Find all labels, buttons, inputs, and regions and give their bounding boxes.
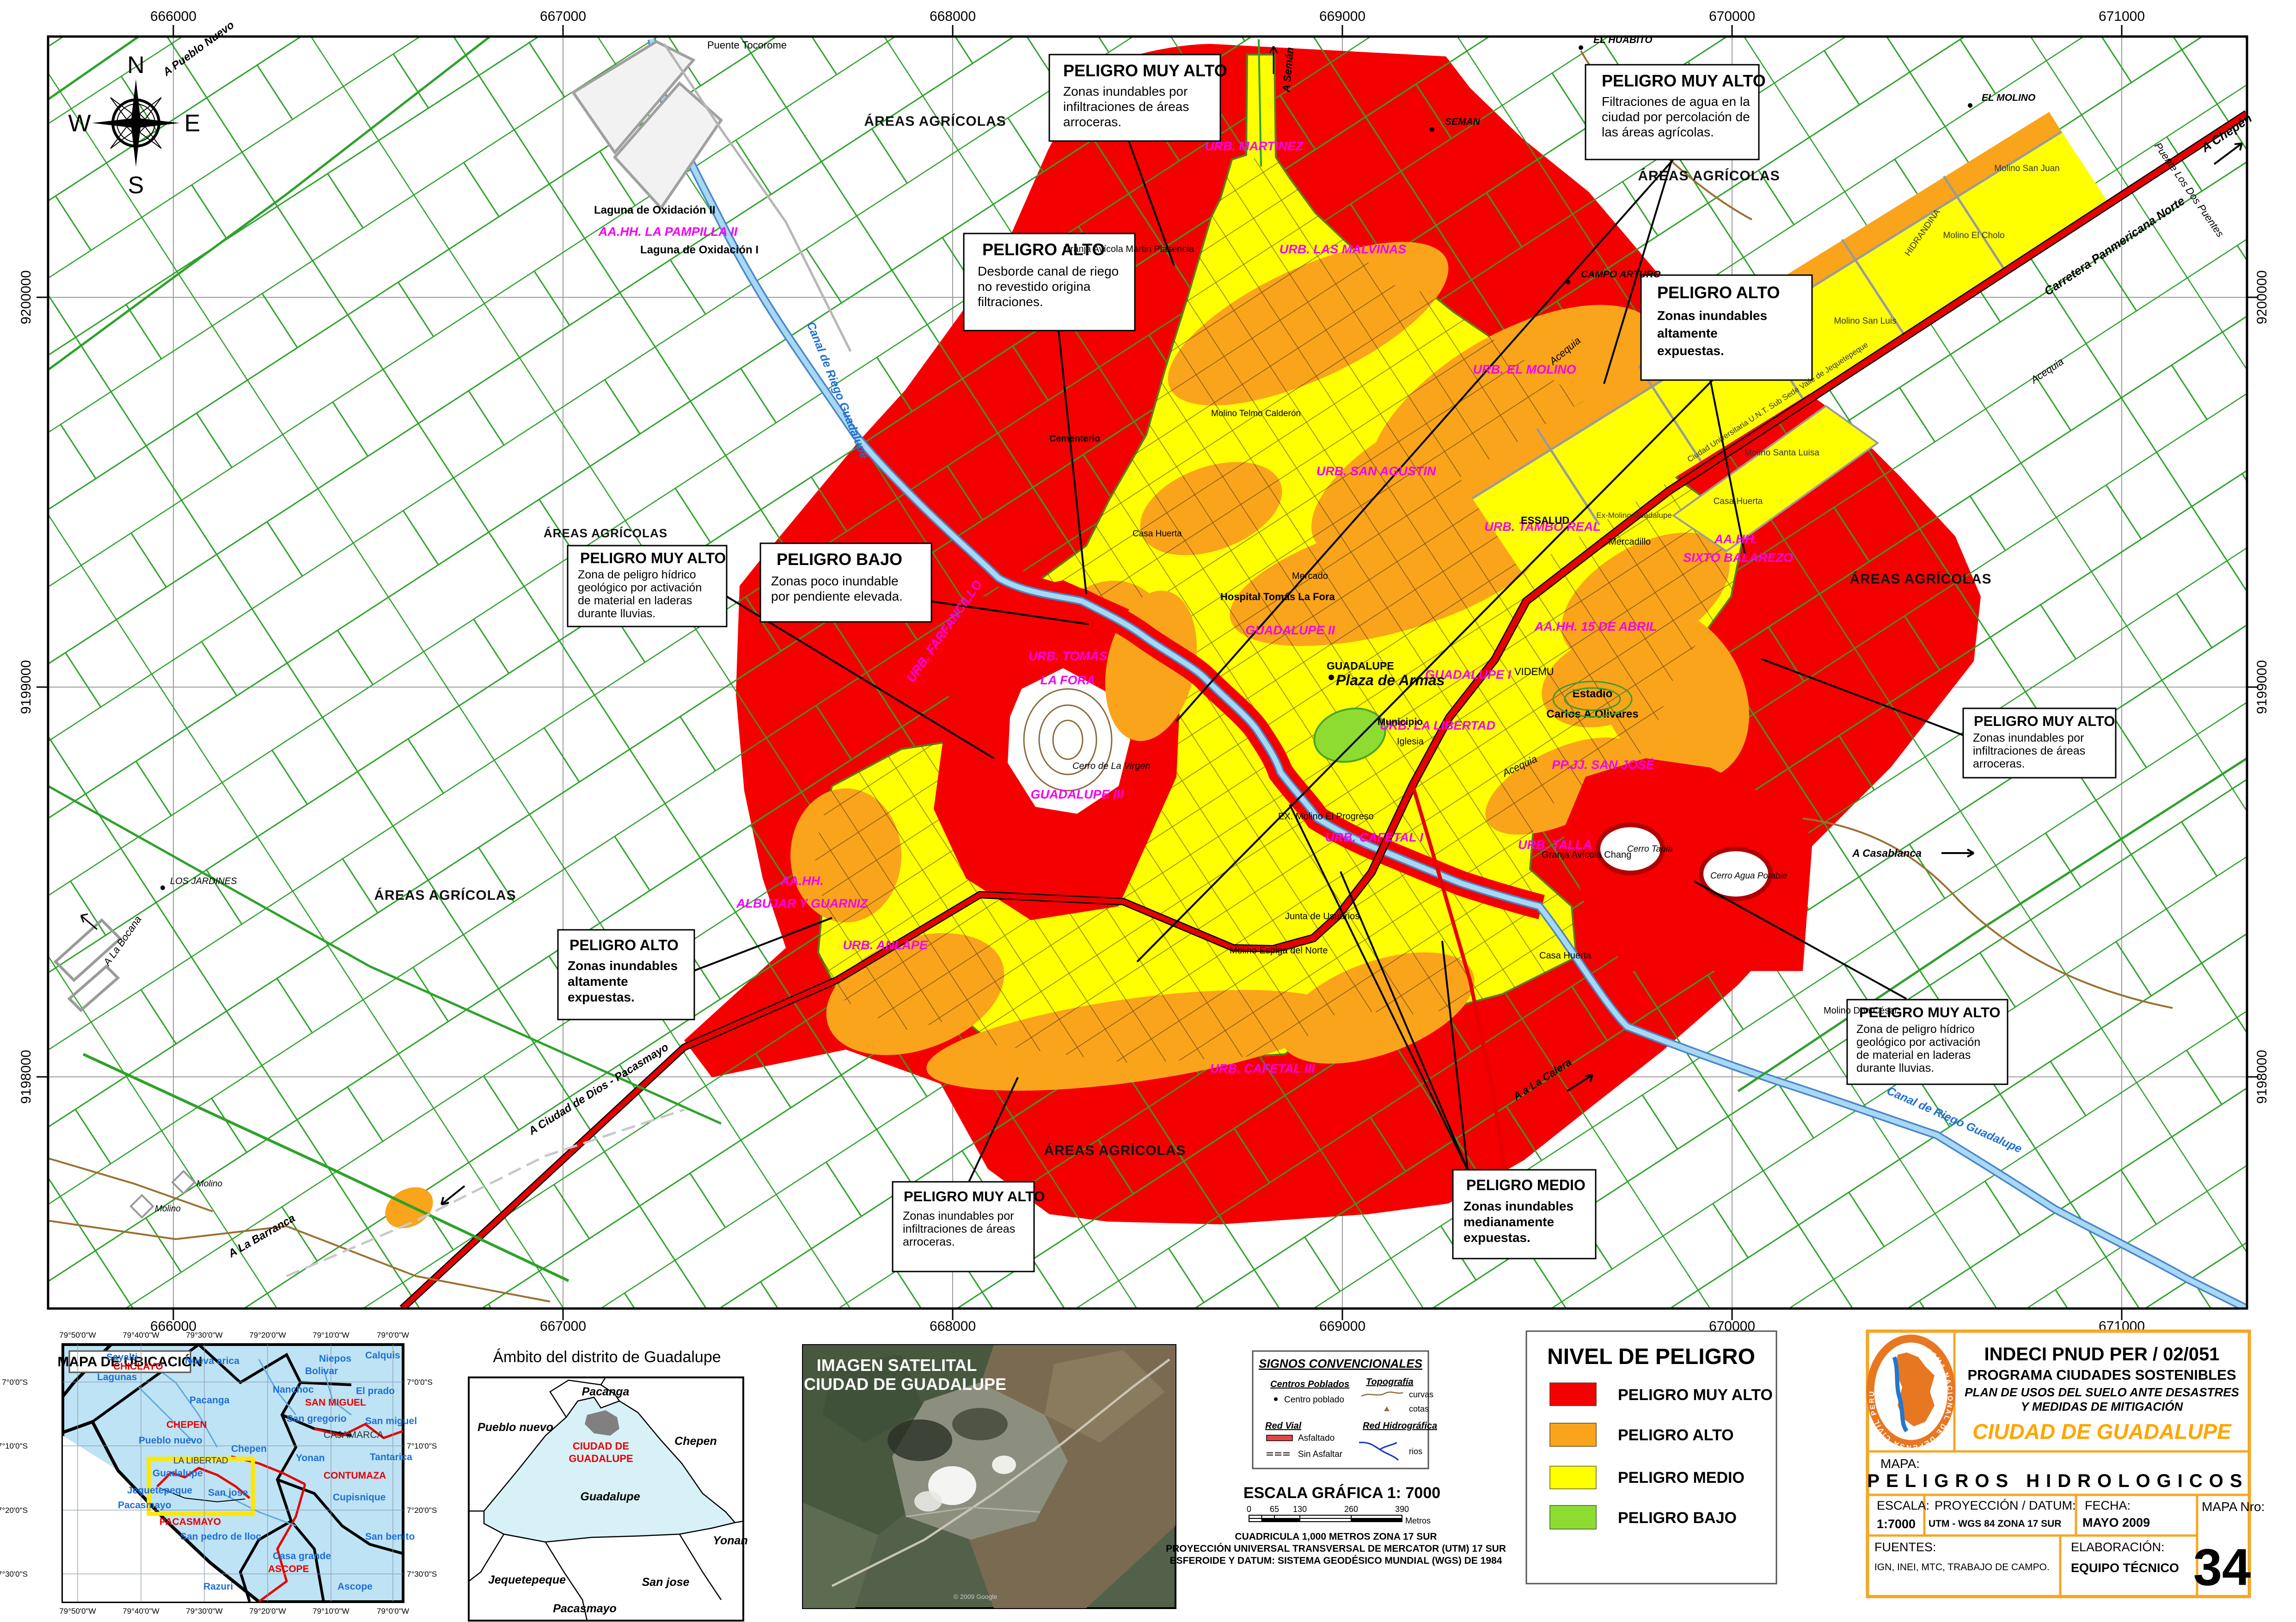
svg-text:GUADALUPE II: GUADALUPE II	[1245, 623, 1335, 637]
svg-text:Casa grande: Casa grande	[273, 1551, 331, 1561]
svg-text:666000: 666000	[150, 9, 196, 24]
svg-text:A Casablanca: A Casablanca	[1852, 847, 1922, 859]
svg-text:9199000: 9199000	[2254, 660, 2270, 714]
svg-text:79°50'0"W: 79°50'0"W	[59, 1331, 96, 1339]
svg-text:Zonas inundables por: Zonas inundables por	[1973, 731, 2084, 744]
svg-text:expuestas.: expuestas.	[1463, 1230, 1531, 1245]
svg-text:arroceras.: arroceras.	[1973, 757, 2025, 770]
svg-text:7°30'0"S: 7°30'0"S	[407, 1570, 437, 1579]
svg-text:URB. CAFETAL III: URB. CAFETAL III	[1210, 1062, 1315, 1075]
svg-text:CIUDAD DE: CIUDAD DE	[573, 1440, 629, 1452]
svg-text:Centro poblado: Centro poblado	[1284, 1395, 1344, 1405]
svg-text:Tantarica: Tantarica	[370, 1452, 412, 1462]
svg-text:durante lluvias.: durante lluvias.	[1856, 1062, 1934, 1075]
svg-text:260: 260	[1344, 1505, 1358, 1514]
svg-text:URB. TOMÁS: URB. TOMÁS	[1029, 649, 1108, 663]
svg-text:SIGNOS CONVENCIONALES: SIGNOS CONVENCIONALES	[1259, 1357, 1423, 1370]
svg-text:Ex-Molino Guadalupe: Ex-Molino Guadalupe	[1596, 511, 1671, 520]
svg-text:ESCALA GRÁFICA 1: 7000: ESCALA GRÁFICA 1: 7000	[1243, 1484, 1440, 1502]
svg-text:667000: 667000	[540, 1319, 586, 1334]
svg-text:Mercadillo: Mercadillo	[1609, 537, 1651, 547]
svg-text:Molino Telmo Calderón: Molino Telmo Calderón	[1211, 409, 1301, 418]
svg-text:Calquis: Calquis	[365, 1350, 400, 1361]
svg-text:URB. SAN AGUSTIN: URB. SAN AGUSTIN	[1316, 464, 1436, 478]
svg-text:ciudad por percolación de: ciudad por percolación de	[1602, 110, 1750, 124]
svg-text:San jose: San jose	[642, 1576, 690, 1589]
svg-text:INDECI PNUD PER / 02/051: INDECI PNUD PER / 02/051	[1984, 1344, 2219, 1364]
svg-text:VIDEMU: VIDEMU	[1514, 666, 1554, 677]
svg-text:GUADALUPE: GUADALUPE	[569, 1453, 633, 1464]
svg-text:9200000: 9200000	[2254, 270, 2270, 325]
svg-text:expuestas.: expuestas.	[568, 990, 635, 1004]
svg-text:Zonas poco inundable: Zonas poco inundable	[771, 574, 899, 588]
svg-text:0: 0	[1247, 1505, 1251, 1514]
svg-text:670000: 670000	[1709, 9, 1755, 24]
svg-text:IMAGEN SATELITAL: IMAGEN SATELITAL	[817, 1356, 977, 1375]
svg-text:Zonas inundables por: Zonas inundables por	[1063, 84, 1188, 98]
svg-text:AA.HH.: AA.HH.	[780, 874, 824, 888]
svg-text:1:7000: 1:7000	[1877, 1517, 1916, 1531]
svg-text:PROGRAMA CIUDADES SOSTENIBLES: PROGRAMA CIUDADES SOSTENIBLES	[1967, 1367, 2236, 1383]
svg-text:ESCALA:: ESCALA:	[1877, 1499, 1929, 1512]
svg-text:Molino Don César: Molino Don César	[1824, 1006, 1898, 1016]
svg-text:Pacasmayo: Pacasmayo	[553, 1602, 617, 1615]
svg-text:79°20'0"W: 79°20'0"W	[249, 1607, 286, 1616]
svg-text:Lagunas: Lagunas	[97, 1372, 137, 1382]
svg-text:SEMAN: SEMAN	[1445, 117, 1481, 127]
svg-text:Puente Tocorome: Puente Tocorome	[707, 39, 787, 51]
svg-text:durante lluvias.: durante lluvias.	[578, 607, 655, 620]
svg-text:San gregorio: San gregorio	[287, 1413, 347, 1424]
svg-text:EL MOLINO: EL MOLINO	[1982, 92, 2035, 103]
svg-text:PELIGRO MEDIO: PELIGRO MEDIO	[1618, 1469, 1745, 1487]
svg-text:7°20'0"S: 7°20'0"S	[0, 1506, 28, 1515]
svg-text:FUENTES:: FUENTES:	[1874, 1540, 1936, 1554]
svg-text:San pedro de lloc: San pedro de lloc	[180, 1531, 261, 1542]
svg-text:Plaza de Armas: Plaza de Armas	[1336, 672, 1445, 688]
svg-text:Zonas inundables: Zonas inundables	[1463, 1199, 1574, 1213]
svg-text:CHICLAYO: CHICLAYO	[113, 1361, 163, 1372]
svg-text:por pendiente elevada.: por pendiente elevada.	[771, 589, 903, 603]
svg-text:ÁREAS AGRÍCOLAS: ÁREAS AGRÍCOLAS	[1849, 571, 1991, 587]
svg-text:130: 130	[1293, 1505, 1307, 1514]
svg-text:79°40'0"W: 79°40'0"W	[122, 1607, 159, 1616]
svg-text:Filtraciones de agua en la: Filtraciones de agua en la	[1602, 94, 1750, 109]
svg-text:CAJAMARCA: CAJAMARCA	[324, 1430, 384, 1440]
svg-text:Pacanga: Pacanga	[190, 1395, 230, 1406]
svg-text:79°40'0"W: 79°40'0"W	[122, 1331, 159, 1339]
svg-text:PROYECCIÓN / DATUM:: PROYECCIÓN / DATUM:	[1935, 1498, 2076, 1512]
svg-text:UTM - WGS 84 ZONA 17 SUR: UTM - WGS 84 ZONA 17 SUR	[1929, 1518, 2061, 1529]
svg-text:Cerro Tapia: Cerro Tapia	[1627, 844, 1673, 854]
svg-text:9198000: 9198000	[2254, 1050, 2270, 1104]
svg-text:Pueblo nuevo: Pueblo nuevo	[139, 1435, 202, 1446]
svg-text:PELIGRO BAJO: PELIGRO BAJO	[777, 550, 902, 569]
svg-text:infiltraciones de áreas: infiltraciones de áreas	[903, 1223, 1015, 1235]
svg-text:9200000: 9200000	[18, 270, 34, 325]
svg-text:PP.JJ. SAN JOSÉ: PP.JJ. SAN JOSÉ	[1552, 757, 1655, 772]
svg-text:Laguna de Oxidación I: Laguna de Oxidación I	[640, 244, 759, 256]
svg-text:GUADALUPE III: GUADALUPE III	[1030, 787, 1124, 801]
svg-text:LOS JARDINES: LOS JARDINES	[170, 876, 237, 886]
svg-text:7°0'0"S: 7°0'0"S	[407, 1378, 433, 1387]
svg-text:© 2009 Google: © 2009 Google	[954, 1593, 998, 1600]
svg-text:ELABORACIÓN:: ELABORACIÓN:	[2071, 1540, 2165, 1554]
svg-text:Yonan: Yonan	[296, 1453, 325, 1463]
svg-text:de material en laderas: de material en laderas	[1856, 1049, 1971, 1062]
svg-text:34: 34	[2193, 1538, 2251, 1596]
svg-text:Zonas inundables: Zonas inundables	[1657, 308, 1767, 323]
svg-text:PLAN DE USOS DEL SUELO ANTE DE: PLAN DE USOS DEL SUELO ANTE DESASTRES	[1965, 1385, 2239, 1399]
svg-text:Metros: Metros	[1405, 1516, 1431, 1525]
svg-text:Casa Huerta: Casa Huerta	[1714, 497, 1763, 506]
svg-text:Sin Asfaltar: Sin Asfaltar	[1298, 1450, 1343, 1459]
svg-text:IGN, INEI, MTC, TRABAJO DE CAM: IGN, INEI, MTC, TRABAJO DE CAMPO.	[1874, 1562, 2050, 1573]
svg-text:Yonan: Yonan	[713, 1534, 747, 1547]
svg-text:Molino: Molino	[155, 1204, 181, 1214]
svg-text:Municipio: Municipio	[1378, 717, 1423, 727]
svg-text:Red Vial: Red Vial	[1265, 1421, 1302, 1431]
svg-text:Zonas inundables: Zonas inundables	[568, 958, 678, 973]
svg-text:URB. EL MOLINO: URB. EL MOLINO	[1473, 362, 1576, 376]
svg-text:Molino El Cholo: Molino El Cholo	[1943, 231, 2004, 240]
svg-text:CHEPEN: CHEPEN	[166, 1419, 207, 1430]
svg-text:669000: 669000	[1319, 9, 1365, 24]
svg-text:curvas: curvas	[1409, 1390, 1433, 1399]
svg-text:arroceras.: arroceras.	[903, 1235, 955, 1248]
svg-text:Ascope: Ascope	[337, 1581, 373, 1592]
svg-text:Molino Espiga del Norte: Molino Espiga del Norte	[1230, 946, 1328, 956]
svg-text:669000: 669000	[1319, 1319, 1365, 1334]
svg-text:infiltraciones de áreas: infiltraciones de áreas	[1973, 744, 2085, 757]
svg-text:Casa Huerta: Casa Huerta	[1133, 529, 1182, 539]
svg-text:Cerro Agua Potable: Cerro Agua Potable	[1710, 871, 1787, 881]
svg-text:AA.HH.: AA.HH.	[1714, 532, 1757, 546]
svg-text:Nueva arica: Nueva arica	[185, 1356, 239, 1366]
svg-text:altamente: altamente	[1657, 326, 1718, 340]
svg-text:Y MEDIDAS DE MITIGACIÓN: Y MEDIDAS DE MITIGACIÓN	[2021, 1400, 2184, 1413]
svg-text:667000: 667000	[540, 9, 586, 24]
svg-text:San benito: San benito	[365, 1531, 415, 1542]
svg-text:Nanchoc: Nanchoc	[273, 1384, 314, 1395]
svg-text:ÁREAS AGRÍCOLAS: ÁREAS AGRÍCOLAS	[374, 887, 516, 903]
svg-text:geológico por activación: geológico por activación	[1856, 1036, 1980, 1049]
svg-text:FECHA:: FECHA:	[2085, 1499, 2131, 1512]
svg-text:Pacanga: Pacanga	[582, 1385, 630, 1398]
svg-text:Zona de peligro hídrico: Zona de peligro hídrico	[1856, 1023, 1975, 1036]
svg-text:URB. ANLAPE: URB. ANLAPE	[843, 938, 928, 952]
svg-text:PELIGROS HIDROLOGICOS: PELIGROS HIDROLOGICOS	[1867, 1471, 2248, 1491]
svg-text:79°20'0"W: 79°20'0"W	[249, 1331, 286, 1339]
svg-text:no revestido origina: no revestido origina	[978, 279, 1091, 294]
svg-text:SAN MIGUEL: SAN MIGUEL	[305, 1397, 366, 1408]
svg-text:Ámbito del distrito de Guadalu: Ámbito del distrito de Guadalupe	[493, 1348, 721, 1366]
svg-text:Jequetepeque: Jequetepeque	[127, 1485, 192, 1496]
svg-text:CONTUMAZA: CONTUMAZA	[324, 1470, 386, 1481]
svg-text:LA LIBERTAD: LA LIBERTAD	[173, 1456, 228, 1466]
svg-text:N: N	[127, 52, 145, 79]
svg-text:PELIGRO BAJO: PELIGRO BAJO	[1618, 1509, 1737, 1527]
svg-text:Molino Santa Luisa: Molino Santa Luisa	[1745, 448, 1819, 458]
svg-text:arroceras.: arroceras.	[1063, 115, 1121, 129]
svg-text:65: 65	[1270, 1505, 1279, 1514]
svg-text:Molino: Molino	[196, 1179, 222, 1189]
svg-text:PELIGRO ALTO: PELIGRO ALTO	[1618, 1426, 1734, 1444]
svg-text:Niepos: Niepos	[319, 1353, 351, 1364]
svg-text:PELIGRO MUY ALTO: PELIGRO MUY ALTO	[904, 1188, 1045, 1204]
svg-text:Casa Huerta: Casa Huerta	[1539, 951, 1592, 961]
svg-text:Cementerio: Cementerio	[1049, 434, 1100, 444]
svg-text:San miguel: San miguel	[365, 1416, 417, 1426]
svg-text:CIUDAD DE GUADALUPE: CIUDAD DE GUADALUPE	[1972, 1419, 2232, 1444]
svg-text:ALBUJAR Y GUARNIZ: ALBUJAR Y GUARNIZ	[736, 897, 869, 910]
svg-text:El prado: El prado	[356, 1386, 395, 1396]
svg-text:79°30'0"W: 79°30'0"W	[186, 1607, 222, 1616]
svg-text:ÁREAS AGRÍCOLAS: ÁREAS AGRÍCOLAS	[1638, 168, 1780, 184]
svg-text:ESSALUD: ESSALUD	[1521, 515, 1569, 526]
svg-text:Cupisnique: Cupisnique	[333, 1492, 386, 1503]
svg-text:9199000: 9199000	[18, 660, 34, 714]
svg-text:79°10'0"W: 79°10'0"W	[312, 1331, 349, 1339]
svg-text:geológico por activación: geológico por activación	[578, 581, 702, 594]
svg-text:AA.HH. LA PAMPILLA II: AA.HH. LA PAMPILLA II	[598, 225, 738, 239]
svg-text:infiltraciones de áreas: infiltraciones de áreas	[1063, 99, 1189, 114]
svg-text:PELIGRO MUY ALTO: PELIGRO MUY ALTO	[1063, 61, 1227, 80]
svg-text:ESFEROIDE Y DATUM: SISTEMA GEO: ESFEROIDE Y DATUM: SISTEMA GEODÉSICO MUN…	[1170, 1555, 1502, 1566]
svg-text:Granja Avícola Martin Plasenci: Granja Avícola Martin Plasencia	[1063, 244, 1194, 254]
svg-text:Iglesia: Iglesia	[1397, 737, 1424, 747]
svg-text:PELIGRO MUY ALTO: PELIGRO MUY ALTO	[1974, 713, 2115, 729]
svg-text:Asfaltado: Asfaltado	[1298, 1433, 1335, 1443]
svg-text:Mercado: Mercado	[1292, 571, 1328, 581]
svg-text:medianamente: medianamente	[1463, 1215, 1554, 1229]
svg-text:rios: rios	[1409, 1447, 1422, 1456]
svg-text:Pacasmayo: Pacasmayo	[118, 1500, 171, 1511]
svg-text:Granja Avícola Chang: Granja Avícola Chang	[1542, 850, 1631, 860]
svg-text:Junta de Usuarios: Junta de Usuarios	[1285, 911, 1359, 922]
svg-text:cotas: cotas	[1409, 1404, 1429, 1413]
svg-text:las áreas agrícolas.: las áreas agrícolas.	[1602, 125, 1714, 139]
svg-text:Chepen: Chepen	[674, 1435, 717, 1448]
svg-text:79°30'0"W: 79°30'0"W	[186, 1331, 222, 1339]
svg-text:671000: 671000	[2099, 9, 2145, 24]
svg-text:ÁREAS AGRÍCOLAS: ÁREAS AGRÍCOLAS	[864, 113, 1006, 129]
svg-text:Zonas inundables por: Zonas inundables por	[903, 1210, 1014, 1223]
svg-text:CIUDAD DE GUADALUPE: CIUDAD DE GUADALUPE	[804, 1375, 1006, 1394]
svg-text:URB. CAFETAL I: URB. CAFETAL I	[1325, 830, 1423, 844]
svg-text:Bolivar: Bolivar	[305, 1366, 338, 1376]
svg-text:7°10'0"S: 7°10'0"S	[407, 1442, 437, 1450]
svg-text:Hospital Tomás La Fora: Hospital Tomás La Fora	[1220, 591, 1335, 602]
svg-text:MAPA:: MAPA:	[1880, 1456, 1920, 1471]
svg-text:ASCOPE: ASCOPE	[268, 1564, 309, 1574]
svg-text:79°0'0"W: 79°0'0"W	[377, 1607, 409, 1616]
svg-text:7°30'0"S: 7°30'0"S	[0, 1570, 28, 1579]
svg-text:Desborde canal de riego: Desborde canal de riego	[978, 264, 1119, 278]
svg-text:Pueblo nuevo: Pueblo nuevo	[478, 1421, 553, 1434]
svg-text:390: 390	[1395, 1505, 1409, 1514]
svg-text:PELIGRO MEDIO: PELIGRO MEDIO	[1466, 1177, 1586, 1193]
svg-text:LA FORA: LA FORA	[1041, 673, 1096, 687]
svg-text:Molino San Luis: Molino San Luis	[1834, 316, 1896, 326]
svg-text:PELIGRO MUY ALTO: PELIGRO MUY ALTO	[1618, 1386, 1773, 1404]
svg-text:Topografía: Topografía	[1366, 1377, 1414, 1387]
svg-text:Molino San Juan: Molino San Juan	[1994, 164, 2060, 173]
svg-text:URB. MARTINEZ: URB. MARTINEZ	[1205, 139, 1304, 153]
svg-text:668000: 668000	[930, 1319, 976, 1334]
svg-text:URB. LAS MALVINAS: URB. LAS MALVINAS	[1280, 242, 1407, 256]
svg-text:Centros Poblados: Centros Poblados	[1270, 1379, 1349, 1389]
svg-text:PELIGRO MUY ALTO: PELIGRO MUY ALTO	[1602, 71, 1766, 90]
svg-text:ÁREAS AGRÍCOLAS: ÁREAS AGRÍCOLAS	[544, 526, 667, 540]
svg-text:Guadalupe: Guadalupe	[153, 1468, 203, 1479]
svg-text:Red Hidrográfica: Red Hidrográfica	[1363, 1421, 1437, 1431]
svg-text:7°10'0"S: 7°10'0"S	[0, 1442, 28, 1450]
svg-text:EX. Molino El Progreso: EX. Molino El Progreso	[1278, 811, 1374, 822]
svg-text:9198000: 9198000	[18, 1050, 34, 1104]
svg-text:filtraciones.: filtraciones.	[978, 295, 1043, 309]
svg-text:79°0'0"W: 79°0'0"W	[377, 1331, 409, 1339]
svg-text:SIXTO BALAREZO: SIXTO BALAREZO	[1683, 551, 1793, 565]
svg-text:668000: 668000	[930, 9, 976, 24]
svg-text:expuestas.: expuestas.	[1657, 344, 1724, 358]
svg-text:Razuri: Razuri	[203, 1581, 233, 1592]
svg-text:MAPA Nro:: MAPA Nro:	[2202, 1499, 2265, 1514]
svg-text:Cerro de La Virgen: Cerro de La Virgen	[1072, 761, 1151, 771]
svg-text:79°50'0"W: 79°50'0"W	[59, 1607, 96, 1616]
svg-text:PACASMAYO: PACASMAYO	[159, 1517, 221, 1527]
svg-text:San jose: San jose	[208, 1487, 248, 1498]
svg-text:CAMPO ARTURO: CAMPO ARTURO	[1581, 269, 1661, 280]
svg-text:E: E	[184, 110, 201, 137]
svg-text:7°0'0"S: 7°0'0"S	[2, 1378, 28, 1387]
svg-text:AA.HH. 15 DE ABRIL: AA.HH. 15 DE ABRIL	[1534, 620, 1657, 633]
svg-text:PELIGRO ALTO: PELIGRO ALTO	[1657, 283, 1780, 302]
svg-text:NIVEL DE PELIGRO: NIVEL DE PELIGRO	[1547, 1345, 1755, 1369]
svg-text:Chepen: Chepen	[231, 1444, 267, 1454]
svg-text:79°10'0"W: 79°10'0"W	[312, 1607, 349, 1616]
svg-text:ÁREAS AGRÍCOLAS: ÁREAS AGRÍCOLAS	[1044, 1143, 1186, 1158]
svg-text:Guadalupe: Guadalupe	[580, 1490, 640, 1503]
svg-text:Zona de peligro hídrico: Zona de peligro hídrico	[578, 568, 696, 581]
svg-text:Jequetepeque: Jequetepeque	[488, 1573, 566, 1586]
svg-text:7°20'0"S: 7°20'0"S	[407, 1506, 437, 1515]
svg-text:de material en laderas: de material en laderas	[578, 594, 692, 607]
svg-text:GUADALUPE: GUADALUPE	[1327, 660, 1394, 672]
svg-text:MAYO 2009: MAYO 2009	[2082, 1516, 2150, 1530]
svg-text:altamente: altamente	[568, 974, 628, 989]
svg-text:EQUIPO TÉCNICO: EQUIPO TÉCNICO	[2071, 1561, 2179, 1575]
svg-text:W: W	[68, 110, 91, 137]
svg-text:PROYECCIÓN UNIVERSAL TRANSVERS: PROYECCIÓN UNIVERSAL TRANSVERSAL DE MERC…	[1166, 1543, 1506, 1554]
svg-text:S: S	[128, 172, 144, 199]
svg-text:Laguna de Oxidación II: Laguna de Oxidación II	[594, 204, 716, 216]
svg-text:EL HUABITO: EL HUABITO	[1593, 35, 1653, 45]
svg-text:PELIGRO MUY ALTO: PELIGRO MUY ALTO	[580, 550, 726, 566]
svg-text:PELIGRO ALTO: PELIGRO ALTO	[569, 937, 679, 953]
svg-text:CUADRICULA 1,000 METROS ZONA 1: CUADRICULA 1,000 METROS ZONA 17 SUR	[1235, 1531, 1437, 1542]
